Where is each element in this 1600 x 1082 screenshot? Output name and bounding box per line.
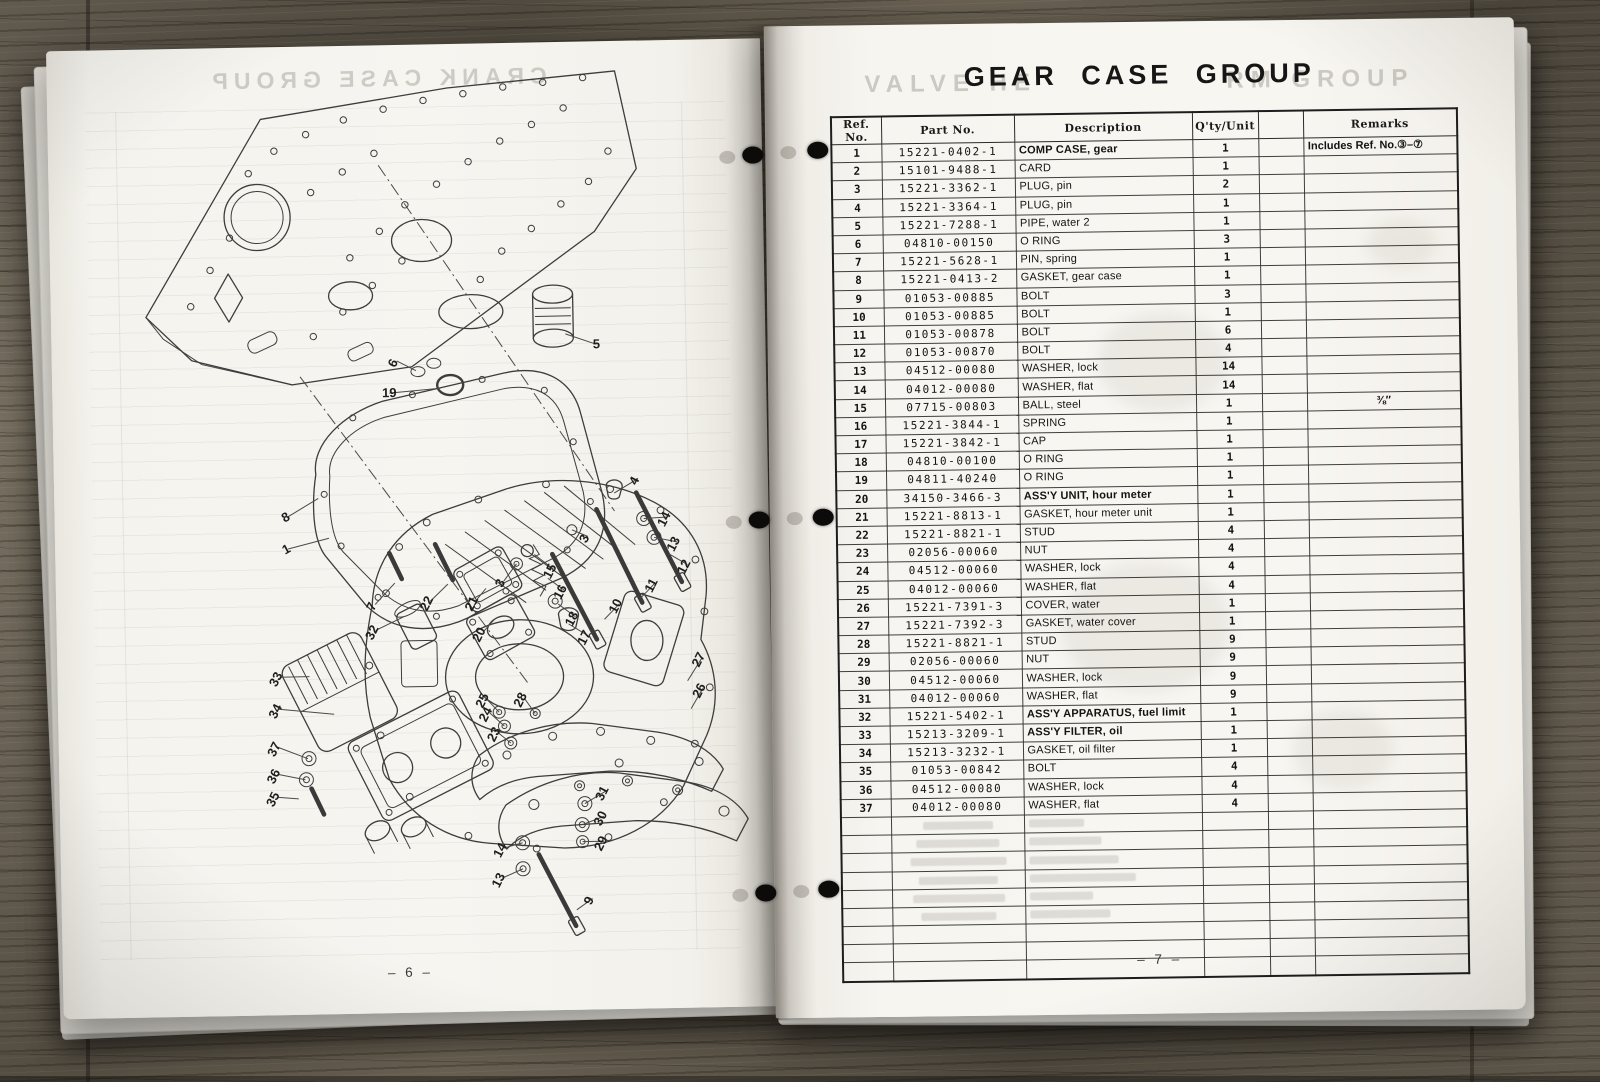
cell-part: 02056-00060 [889,651,1022,671]
cell-qty: 4 [1198,539,1264,558]
cell-blank [1263,465,1308,484]
cell-remarks [1312,754,1466,774]
cell-ref: 37 [841,799,891,818]
cell-part: 04512-00080 [890,779,1023,799]
cell-part: 15221-5402-1 [889,706,1022,726]
cell-remarks [1308,463,1462,483]
cell-qty: 4 [1201,775,1267,794]
cell-ref: 9 [833,290,883,309]
cell-ref: 14 [835,380,885,399]
ghost-showthrough-bar [913,894,1005,903]
cell-blank [1261,302,1306,321]
cell-empty [1270,956,1315,975]
cell-qty: 1 [1196,393,1262,412]
cell-blank [1262,429,1307,448]
cell-blank [1260,265,1305,284]
cell-remarks [1304,209,1458,229]
cell-part: 04012-00060 [889,688,1022,708]
cell-remarks [1305,245,1459,265]
cell-blank [1258,138,1303,157]
parts-table-body: 115221-0402-1COMP CASE, gear1Includes Re… [831,136,1469,982]
cell-empty [1202,830,1268,849]
cell-remarks [1308,481,1462,501]
cell-part: 15221-7391-3 [888,597,1021,617]
cell-empty [893,924,1026,944]
callout-number: 3 [576,532,593,545]
cell-ref: 33 [840,726,890,745]
cell-blank [1260,229,1305,248]
cell-part: 02056-00060 [887,542,1020,562]
cell-empty [1314,918,1468,938]
callout-number: 10 [605,596,625,616]
cell-empty [1203,884,1269,903]
axis-line [300,373,528,687]
cell-ref: 1 [831,144,881,163]
ghost-showthrough-bar [921,912,996,921]
cell-ref: 15 [835,399,885,418]
cell-remarks [1306,318,1460,338]
ghost-showthrough-bar [1030,909,1110,918]
ghost-showthrough-bar [916,839,999,848]
cell-ref: 22 [837,526,887,545]
cell-blank [1265,574,1310,593]
crankcase-block-drawing [142,71,641,388]
cell-part: 15221-7392-3 [888,615,1021,635]
cell-remarks [1307,372,1461,392]
cell-remarks [1306,336,1460,356]
cell-empty [1313,809,1467,829]
cell-part: 15221-3844-1 [885,415,1018,435]
callout-number: 21 [461,594,481,614]
ghost-showthrough-bar [1029,837,1101,846]
ghost-showthrough-bar [910,857,1006,866]
parts-table-container: Ref. No.Part No.DescriptionQ'ty/UnitRema… [830,107,1470,983]
callout-number: 27 [688,650,708,670]
cell-qty: 9 [1199,630,1265,649]
cell-ref: 21 [837,508,887,527]
cell-ref: 32 [839,708,889,727]
callout-number: 11 [641,576,661,595]
cell-empty [1314,900,1468,920]
cell-qty: 4 [1199,575,1265,594]
cell-empty [842,871,892,890]
cell-blank [1266,647,1311,666]
cell-ref: 11 [834,326,884,345]
cell-blank [1264,520,1309,539]
cell-blank [1260,283,1305,302]
cell-empty [1268,811,1313,830]
cell-remarks [1304,190,1458,210]
open-parts-manual-book: CRANK CASE GROUP [0,0,1600,1082]
cell-ref: 28 [838,635,888,654]
cell-qty: 2 [1193,175,1259,194]
cell-remarks [1308,445,1462,465]
cell-blank [1261,320,1306,339]
cell-remarks [1310,609,1464,629]
cell-qty: 1 [1193,211,1259,230]
cell-qty: 14 [1195,357,1261,376]
cell-qty: 1 [1197,502,1263,521]
cell-empty [1203,902,1269,921]
cell-empty [892,906,1025,926]
cell-blank [1266,684,1311,703]
bolt-hole-pattern [183,74,614,342]
cell-part: 04512-00060 [887,560,1020,580]
cell-qty: 1 [1193,157,1259,176]
cell-part: 04512-00080 [884,360,1017,380]
cell-qty: 4 [1195,339,1261,358]
cell-part: 15101-9488-1 [882,160,1015,180]
cell-qty: 1 [1201,739,1267,758]
rib-hatching [444,485,636,604]
cell-part: 04811-40240 [886,469,1019,489]
cell-ref: 18 [836,453,886,472]
cell-blank [1259,211,1304,230]
cell-blank [1263,502,1308,521]
cell-part: 01053-00878 [884,324,1017,344]
callout-number: 5 [593,336,601,351]
cell-qty: 1 [1195,302,1261,321]
cell-blank [1259,156,1304,175]
cell-qty: 1 [1197,484,1263,503]
cell-remarks [1311,663,1465,683]
callout-number: 13 [488,870,508,890]
cell-blank [1268,793,1313,812]
cell-qty: 1 [1193,193,1259,212]
cell-empty [891,851,1024,871]
cell-blank [1260,247,1305,266]
photo-of-open-parts-manual: CRANK CASE GROUP [0,0,1600,1082]
cell-remarks: Includes Ref. No.③–⑦ [1303,136,1457,156]
callout-number: 14 [490,840,510,860]
cell-qty: 9 [1200,648,1266,667]
callout-number: 19 [382,385,397,400]
callout-number: 26 [689,681,709,701]
callout-leader-line [375,583,395,604]
cell-ref: 25 [838,580,888,599]
ghost-showthrough-bar [1030,891,1093,900]
cell-part: 15221-3364-1 [882,197,1015,217]
cell-empty [892,870,1025,890]
column-header: Ref. No. [831,117,881,145]
cell-empty [841,817,891,836]
cell-part: 15221-0402-1 [881,142,1014,162]
cell-qty: 6 [1195,320,1261,339]
cell-qty: 14 [1196,375,1262,394]
cell-qty: 1 [1196,411,1262,430]
cell-empty [1204,957,1270,977]
cell-blank [1264,538,1309,557]
cell-remarks [1304,172,1458,192]
cell-remarks [1306,354,1460,374]
cell-empty [1314,863,1468,883]
cell-ref: 12 [834,344,884,363]
cell-empty [1270,938,1315,957]
cell-remarks [1306,299,1460,319]
cell-blank [1263,447,1308,466]
cell-ref: 5 [832,217,882,236]
cell-qty: 4 [1201,757,1267,776]
cell-empty [1204,939,1270,958]
cell-ref: 3 [832,180,882,199]
cell-part: 15213-3209-1 [890,724,1023,744]
column-header: Part No. [881,115,1014,144]
cell-qty: 9 [1200,684,1266,703]
callout-number: 8 [279,509,293,526]
cell-part: 15221-5628-1 [883,251,1016,271]
cell-part: 15221-8813-1 [887,506,1020,526]
callout-number: 36 [263,766,283,786]
cell-part: 15221-3362-1 [882,178,1015,198]
cell-blank [1265,611,1310,630]
cell-ref: 7 [833,253,883,272]
cell-blank [1261,338,1306,357]
cell-part: 01053-00842 [890,760,1023,780]
cell-remarks [1313,790,1467,810]
cell-empty [842,890,892,909]
cell-empty [841,853,891,872]
cell-ref: 10 [834,308,884,327]
cell-ref: 19 [836,471,886,490]
cell-qty: 1 [1194,248,1260,267]
cell-blank [1261,356,1306,375]
cell-ref: 26 [838,599,888,618]
cell-qty: 4 [1198,521,1264,540]
cell-blank [1267,756,1312,775]
cell-part: 01053-00885 [884,306,1017,326]
cell-ref: 27 [838,617,888,636]
cell-remarks [1308,499,1462,519]
cell-ref: 30 [839,671,889,690]
cell-blank [1264,556,1309,575]
cell-remarks [1312,718,1466,738]
cell-empty [1315,954,1469,975]
cell-ref: 34 [840,744,890,763]
cell-ref: 24 [837,562,887,581]
cell-empty [1314,881,1468,901]
cell-blank [1259,174,1304,193]
cell-empty [1269,865,1314,884]
cell-part: 04810-00100 [886,451,1019,471]
cell-qty: 1 [1197,466,1263,485]
water-pipe-drawing [532,285,573,348]
callout-number: 34 [265,701,285,721]
cell-empty [1203,921,1269,940]
cell-qty: 1 [1197,448,1263,467]
cell-part: 34150-3466-3 [886,488,1019,508]
cell-blank [1267,738,1312,757]
filter-fittings-drawing [362,801,434,864]
cell-qty: 1 [1192,139,1258,158]
column-header [1258,110,1303,138]
cell-qty: 1 [1201,721,1267,740]
cell-empty [893,942,1026,962]
parts-table: Ref. No.Part No.DescriptionQ'ty/UnitRema… [830,107,1470,983]
cell-remarks: ⅜″ [1307,390,1461,410]
cell-empty [1203,866,1269,885]
cell-remarks [1312,772,1466,792]
cell-empty [1202,812,1268,831]
column-header: Remarks [1303,108,1457,138]
cell-ref: 35 [840,762,890,781]
cell-ref: 6 [833,235,883,254]
cell-blank [1265,629,1310,648]
cell-qty: 3 [1194,284,1260,303]
cell-remarks [1310,627,1464,647]
cell-qty: 9 [1200,666,1266,685]
callout-number: 30 [590,808,610,828]
cell-remarks [1311,645,1465,665]
ghost-showthrough-bar [1029,873,1135,883]
cell-empty [843,926,893,945]
cell-ref: 17 [835,435,885,454]
cell-empty [1269,884,1314,903]
cell-qty: 4 [1202,793,1268,812]
cell-part: 15221-7288-1 [882,215,1015,235]
cell-remarks [1309,536,1463,556]
cell-blank [1262,374,1307,393]
cell-ref: 31 [839,690,889,709]
cell-empty [1313,827,1467,847]
cell-remarks [1311,681,1465,701]
cell-remarks [1312,736,1466,756]
cell-remarks [1304,154,1458,174]
cell-ref: 8 [833,271,883,290]
left-page-crank-case-diagram: CRANK CASE GROUP [46,38,778,1019]
callout-leader-line [288,538,329,549]
ghost-showthrough-bar [919,876,998,885]
washer-and-nut-drawings [292,354,667,880]
cell-empty [1315,936,1469,956]
cell-remarks [1309,554,1463,574]
cell-empty [1269,920,1314,939]
cell-qty: 4 [1198,557,1264,576]
left-page-number: – 6 – [388,964,433,980]
callout-number: 4 [626,473,643,487]
cell-blank [1262,393,1307,412]
gear-case-body-drawing [362,478,718,855]
cell-qty: 3 [1194,230,1260,249]
callout-number: 29 [591,833,611,853]
cell-part: 01053-00870 [884,342,1017,362]
cell-part: 04012-00080 [891,797,1024,817]
cell-part: 01053-00885 [883,288,1016,308]
cell-remarks [1310,572,1464,592]
callout-number: 1 [279,541,293,558]
cell-empty [1202,848,1268,867]
callout-number: 23 [484,724,504,744]
column-header: Description [1014,112,1192,142]
cell-blank [1267,720,1312,739]
callout-number: 28 [510,690,530,710]
callout-number: 35 [263,789,283,809]
callout-number: 37 [264,739,284,759]
cell-empty [893,960,1026,981]
callout-number: 6 [384,356,401,369]
right-page-gear-case-group: VALVE HE RM GROUP GEAR CASE GROUP Ref. N… [764,17,1526,1018]
cell-empty [1269,902,1314,921]
cell-ref: 2 [832,162,882,181]
cell-empty [1268,847,1313,866]
cell-qty: 1 [1194,266,1260,285]
cell-ref: 20 [836,490,886,509]
cell-part: 15221-0413-2 [883,269,1016,289]
cell-part: 04512-00060 [889,670,1022,690]
cell-part: 15221-8821-1 [888,633,1021,653]
cell-part: 04810-00150 [883,233,1016,253]
cell-qty: 1 [1199,593,1265,612]
cell-empty [891,815,1024,835]
cell-ref: 13 [834,362,884,381]
cell-part: 15213-3232-1 [890,742,1023,762]
cell-blank [1259,193,1304,212]
cell-empty [1268,829,1313,848]
cell-empty [843,944,893,963]
cell-remarks [1310,590,1464,610]
cell-blank [1265,593,1310,612]
cell-remarks [1309,518,1463,538]
cell-remarks [1307,409,1461,429]
cell-qty: 1 [1199,611,1265,630]
water-cover-drawing [498,770,749,849]
cell-empty [843,962,893,981]
cell-ref: 16 [835,417,885,436]
cell-part: 07715-00803 [885,397,1018,417]
cell-qty: 1 [1196,430,1262,449]
cell-remarks [1307,427,1461,447]
right-page-number: – 7 – [1137,951,1182,967]
exploded-parts-diagram: 1956414131211103153161817817322221203334… [46,38,778,1019]
cell-remarks [1305,263,1459,283]
cell-blank [1267,774,1312,793]
ghost-showthrough-bar [1029,855,1118,864]
cell-remarks [1305,227,1459,247]
callout-number: 20 [469,625,489,645]
oil-filter-drawing [279,629,401,755]
cell-ref: 23 [837,544,887,563]
cell-empty [842,908,892,927]
cell-ref: 4 [832,199,882,218]
cell-remarks [1311,700,1465,720]
cell-remarks [1305,281,1459,301]
column-header: Q'ty/Unit [1192,111,1258,139]
cell-blank [1266,665,1311,684]
callout-number: 32 [362,623,382,643]
cell-part: 15221-3842-1 [885,433,1018,453]
cell-empty [841,835,891,854]
ghost-showthrough-bar [923,821,993,830]
cell-blank [1263,484,1308,503]
cell-ref: 36 [840,781,890,800]
cell-part: 04012-00060 [888,579,1021,599]
cell-blank [1262,411,1307,430]
cell-part: 15221-8821-1 [887,524,1020,544]
cell-empty [891,833,1024,853]
ghost-showthrough-bar [1028,819,1083,828]
callout-number: 31 [592,783,612,803]
cell-empty [1313,845,1467,865]
cell-qty: 1 [1200,702,1266,721]
cell-ref: 29 [839,653,889,672]
cell-part: 04012-00080 [885,379,1018,399]
cell-empty [892,888,1025,908]
cell-blank [1266,702,1311,721]
